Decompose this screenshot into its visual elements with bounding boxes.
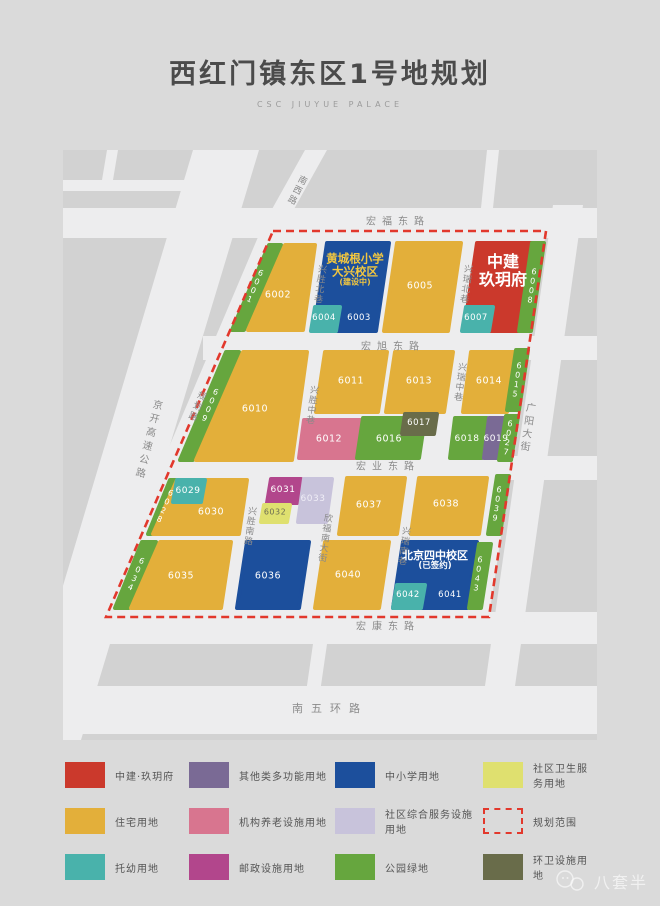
- legend-item-elderly: 机构养老设施用地: [189, 806, 335, 836]
- legend-swatch-park: [335, 854, 375, 880]
- parcel-6004: [311, 307, 340, 331]
- parcel-6040: [315, 542, 389, 608]
- parcel-6013: [386, 352, 453, 412]
- legend-item-school: 中小学用地: [335, 760, 483, 790]
- parcel-6029: [173, 480, 205, 502]
- legend-label-res: 住宅用地: [115, 814, 159, 829]
- legend-swatch-project: [65, 762, 105, 788]
- legend-swatch-kind: [65, 854, 105, 880]
- parcel-6036: [237, 542, 309, 608]
- legend-swatch-community: [335, 808, 375, 834]
- planning-map: 6001600260046003600560076008600960106011…: [63, 150, 597, 740]
- legend-label-boundary: 规划范围: [533, 814, 577, 829]
- parcel-6018: [450, 418, 487, 458]
- legend-swatch-postal: [189, 854, 229, 880]
- legend: 中建·玖玥府其他类多功能用地中小学用地社区卫生服务用地住宅用地机构养老设施用地社…: [65, 760, 597, 882]
- legend-swatch-res: [65, 808, 105, 834]
- legend-label-postal: 邮政设施用地: [239, 860, 305, 875]
- legend-label-elderly: 机构养老设施用地: [239, 814, 327, 829]
- watermark: 八套半: [554, 868, 648, 894]
- parcel-6038: [411, 478, 487, 534]
- legend-swatch-boundary-dashed: [483, 808, 523, 834]
- parcel-6032: [261, 505, 290, 522]
- legend-label-community: 社区综合服务设施用地: [385, 806, 483, 836]
- page-title: 西红门镇东区1号地规划: [0, 52, 660, 91]
- legend-item-multi: 其他类多功能用地: [189, 760, 335, 790]
- legend-label-health: 社区卫生服务用地: [533, 760, 597, 790]
- parcel-6012: [299, 420, 364, 458]
- legend-item-postal: 邮政设施用地: [189, 852, 335, 882]
- parcel-6017: [402, 414, 437, 434]
- parcel-6005: [384, 243, 461, 331]
- legend-swatch-elderly: [189, 808, 229, 834]
- legend-swatch-multi: [189, 762, 229, 788]
- legend-label-school: 中小学用地: [385, 768, 440, 783]
- parcel-6007: [462, 307, 493, 331]
- legend-item-res: 住宅用地: [65, 806, 189, 836]
- legend-item-park: 公园绿地: [335, 852, 483, 882]
- page-subtitle: CSC JIUYUE PALACE: [0, 100, 660, 109]
- road-south-5th-ring: [63, 686, 597, 734]
- legend-item-community: 社区综合服务设施用地: [335, 806, 483, 836]
- legend-swatch-sanitation: [483, 854, 523, 880]
- legend-item-project: 中建·玖玥府: [65, 760, 189, 790]
- legend-item-boundary: 规划范围: [483, 806, 597, 836]
- parcel-6033: [298, 479, 332, 522]
- watermark-logo-icon: [554, 868, 588, 894]
- legend-item-health: 社区卫生服务用地: [483, 760, 597, 790]
- legend-label-project: 中建·玖玥府: [115, 768, 174, 783]
- parcel-6037: [339, 478, 405, 534]
- legend-swatch-health: [483, 762, 523, 788]
- parcel-6031: [267, 479, 301, 503]
- legend-label-park: 公园绿地: [385, 860, 429, 875]
- legend-swatch-school: [335, 762, 375, 788]
- watermark-text: 八套半: [594, 869, 648, 893]
- legend-label-multi: 其他类多功能用地: [239, 768, 327, 783]
- legend-item-kind: 托幼用地: [65, 852, 189, 882]
- legend-label-kind: 托幼用地: [115, 860, 159, 875]
- map-canvas: [63, 150, 597, 740]
- parcel-6042: [393, 585, 425, 608]
- parcel-6011: [316, 352, 387, 412]
